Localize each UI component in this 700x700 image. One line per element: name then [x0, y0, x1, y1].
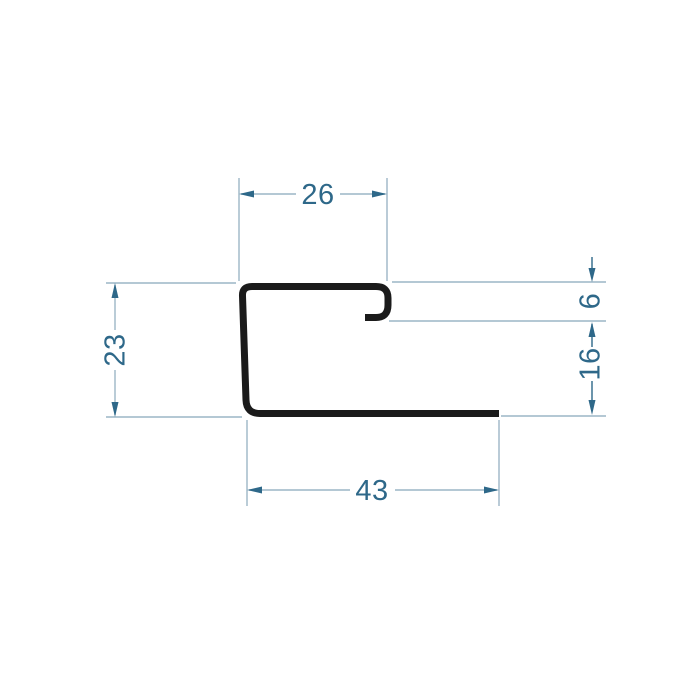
- dimension-left-height: 23: [100, 283, 243, 417]
- dimension-label-bottom-width: 43: [355, 475, 388, 507]
- dimension-top-width: 26: [239, 178, 387, 281]
- arrowhead-down: [589, 400, 596, 415]
- arrowhead-down: [589, 268, 596, 282]
- arrowhead-left: [239, 191, 254, 198]
- profile-dimension-drawing: 26 23 6 16: [0, 0, 700, 700]
- profile-outline: [242, 287, 499, 414]
- dimension-label-right-height: 16: [575, 347, 607, 380]
- arrowhead-up: [589, 322, 596, 337]
- dimension-bottom-width: 43: [247, 420, 499, 507]
- arrowhead-down: [112, 402, 119, 417]
- dimension-label-hook-height: 6: [575, 293, 607, 310]
- arrowhead-right: [484, 487, 499, 494]
- arrowhead-up: [112, 283, 119, 298]
- dimension-label-top-width: 26: [301, 179, 334, 211]
- arrowhead-left: [247, 487, 262, 494]
- dimension-hook-height: 6: [389, 257, 607, 321]
- arrowhead-right: [372, 191, 387, 198]
- technical-drawing-canvas: 26 23 6 16: [0, 0, 700, 700]
- dimension-right-height: 16: [501, 322, 607, 416]
- dimension-label-left-height: 23: [100, 333, 132, 366]
